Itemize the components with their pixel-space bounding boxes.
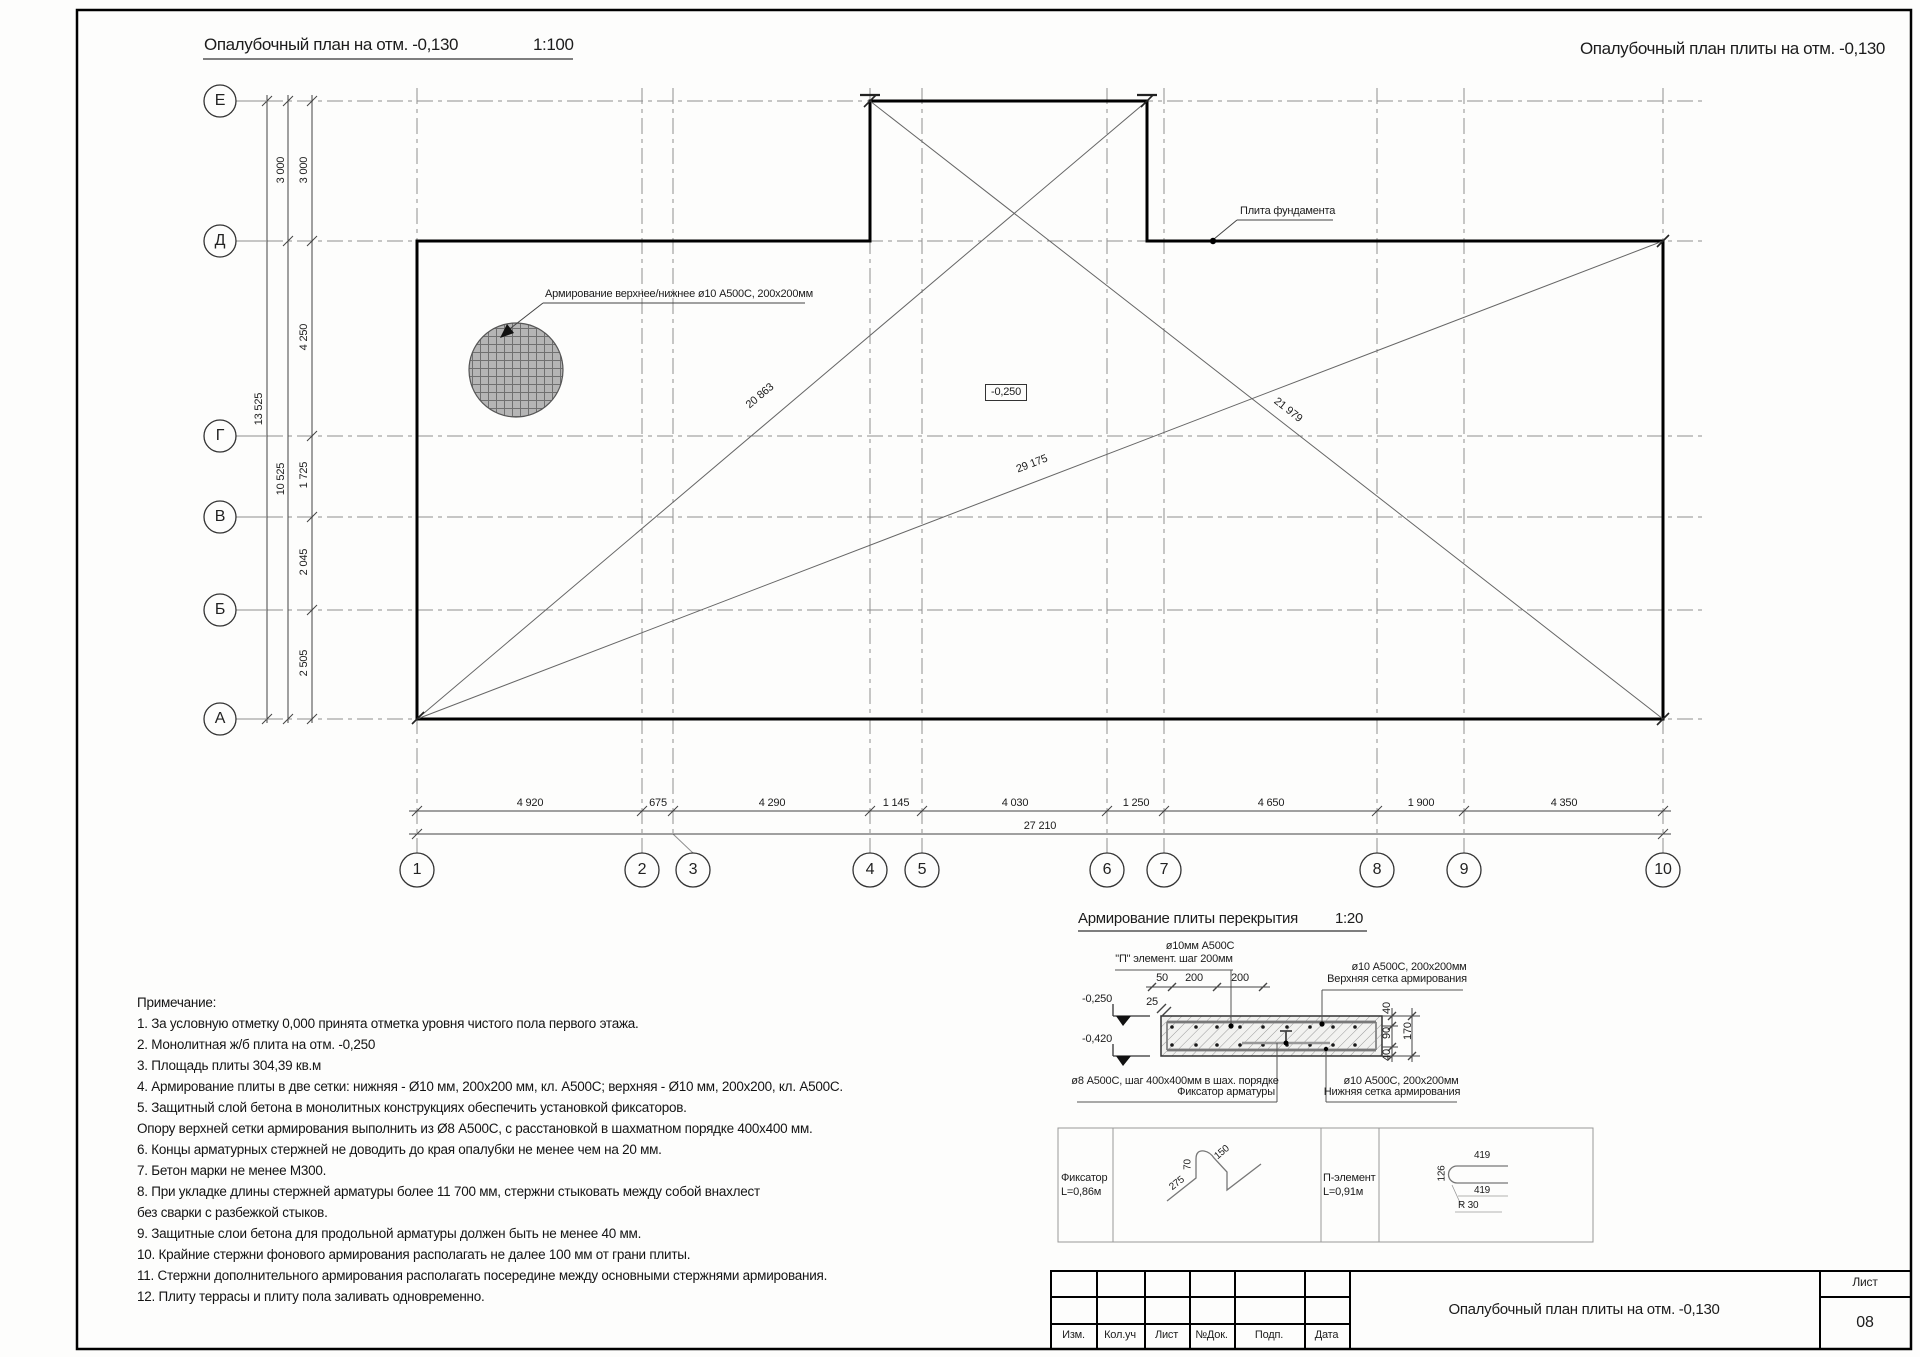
dim-bottom-4650: 4 650 <box>1249 797 1293 809</box>
dim-bottom-4290: 4 290 <box>750 797 794 809</box>
p-element-shape <box>1449 1166 1509 1183</box>
note-line: Опору верхней сетки армирования выполнит… <box>137 1121 812 1136</box>
axis-col-3: 3 <box>676 861 710 879</box>
dim-bottom-1250: 1 250 <box>1114 797 1158 809</box>
note-line: 11. Стержни дополнительного армирования … <box>137 1268 827 1283</box>
axis-row-E: Е <box>204 92 236 110</box>
p-dim-radius: R 30 <box>1458 1200 1478 1211</box>
dim-left-3000b: 3 000 <box>275 145 287 195</box>
dim-bottom-1900: 1 900 <box>1399 797 1443 809</box>
axis-col-7: 7 <box>1147 861 1181 879</box>
note-line: 12. Плиту террасы и плиту пола заливать … <box>137 1289 485 1304</box>
dim-left-2505: 2 505 <box>298 638 310 688</box>
axis-col-4: 4 <box>853 861 887 879</box>
section-upper-mesh-2: Верхняя сетка армирования <box>1317 973 1477 985</box>
axis-col-9: 9 <box>1447 861 1481 879</box>
axis-row-B: Б <box>204 601 236 619</box>
note-line: 3. Площадь плиты 304,39 кв.м <box>137 1058 321 1073</box>
tb-doc-title: Опалубочный план плиты на отм. -0,130 <box>1359 1302 1809 1319</box>
notes-header: Примечание: <box>137 995 216 1010</box>
dim-left-1725: 1 725 <box>298 450 310 500</box>
tb-col-koluch: Кол.уч <box>1097 1329 1143 1341</box>
level-mark: -0,250 <box>985 384 1027 401</box>
note-line: 6. Концы арматурных стержней не доводить… <box>137 1142 662 1157</box>
axis-col-2: 2 <box>625 861 659 879</box>
axis-col-6: 6 <box>1090 861 1124 879</box>
sheet-title-top-right: Опалубочный план плиты на отм. -0,130 <box>1500 40 1885 59</box>
section-upper-mesh-1: ø10 А500С, 200х200мм <box>1329 961 1489 973</box>
note-line: 1. За условную отметку 0,000 принята отм… <box>137 1016 639 1031</box>
section-dim-200a: 200 <box>1180 972 1208 984</box>
p-dim-126: 126 <box>1437 1160 1448 1188</box>
tb-col-list: Лист <box>1145 1329 1188 1341</box>
section-lvl-top: -0,250 <box>1068 993 1112 1005</box>
section-lower-mesh-2: Нижняя сетка армирования <box>1312 1086 1472 1098</box>
col-axis-circles <box>400 853 1680 887</box>
dim-bottom-675: 675 <box>636 797 680 809</box>
axis-col-8: 8 <box>1360 861 1394 879</box>
drawing-sheet: Опалубочный план на отм. -0,130 1:100 Оп… <box>0 0 1920 1357</box>
section-dim-200b: 200 <box>1226 972 1254 984</box>
section-top-note-1: ø10мм А500С <box>1130 940 1270 952</box>
p-dim-419-bottom: 419 <box>1465 1185 1499 1196</box>
p-element-label: П-элемент <box>1323 1172 1375 1184</box>
tb-col-ndok: №Док. <box>1190 1329 1233 1341</box>
section-title: Армирование плиты перекрытия <box>1078 911 1298 928</box>
section-dim-25: 25 <box>1142 996 1162 1008</box>
p-element-length: L=0,91м <box>1323 1186 1363 1198</box>
slab-outline <box>417 101 1663 719</box>
note-line: 4. Армирование плиты в две сетки: нижняя… <box>137 1079 843 1094</box>
section-dim-170: 170 <box>1402 1017 1414 1045</box>
dim-bottom-4350: 4 350 <box>1542 797 1586 809</box>
section-dim-40b: 40 <box>1381 1043 1393 1067</box>
section-scale: 1:20 <box>1335 911 1363 928</box>
p-dim-419-top: 419 <box>1465 1150 1499 1161</box>
axis-row-D: Д <box>204 232 236 250</box>
axis-row-V: В <box>204 508 236 526</box>
section-lvl-bot: -0,420 <box>1068 1033 1112 1045</box>
mesh-note-leader <box>500 303 805 338</box>
note-line: 10. Крайние стержни фонового армирования… <box>137 1247 690 1262</box>
axis-col-10: 10 <box>1646 861 1680 879</box>
diagonal-dimension-lines <box>412 95 1669 725</box>
mesh-note: Армирование верхнее/нижнее ø10 А500С, 20… <box>545 288 813 300</box>
plan-title: Опалубочный план на отм. -0,130 <box>204 36 458 55</box>
fixator-dim-70: 70 <box>1183 1153 1194 1177</box>
tb-col-podp: Подп. <box>1235 1329 1303 1341</box>
note-line: 8. При укладке длины стержней арматуры б… <box>137 1184 760 1199</box>
note-line: 2. Монолитная ж/б плита на отм. -0,250 <box>137 1037 375 1052</box>
dim-left-13525: 13 525 <box>253 382 265 436</box>
section-fixator-2: Фиксатор арматуры <box>1116 1086 1336 1098</box>
section-dim-50: 50 <box>1150 972 1174 984</box>
axis-row-A: А <box>204 710 236 728</box>
tb-sheet-number: 08 <box>1821 1314 1909 1332</box>
axis-row-G: Г <box>204 427 236 445</box>
tb-col-data: Дата <box>1305 1329 1348 1341</box>
note-line: без сварки с разбежкой стыков. <box>137 1205 328 1220</box>
element-boxes <box>1058 1128 1593 1242</box>
plan-scale: 1:100 <box>533 36 574 55</box>
section-dim-40a: 40 <box>1381 996 1393 1020</box>
axis-col-5: 5 <box>905 861 939 879</box>
dim-left-10525: 10 525 <box>275 452 287 506</box>
dim-left-4250: 4 250 <box>298 312 310 362</box>
dim-bottom-4030: 4 030 <box>993 797 1037 809</box>
dim-bottom-total: 27 210 <box>1013 820 1067 832</box>
dim-bottom-1145: 1 145 <box>874 797 918 809</box>
note-line: 5. Защитный слой бетона в монолитных кон… <box>137 1100 687 1115</box>
section-top-note-2: "П" элемент. шаг 200мм <box>1094 953 1254 965</box>
tb-sheet-label: Лист <box>1821 1276 1909 1289</box>
fixator-length: L=0,86м <box>1061 1186 1101 1198</box>
dim-left-2045: 2 045 <box>298 537 310 587</box>
dim-bottom-4920: 4 920 <box>508 797 552 809</box>
tb-col-izm: Изм. <box>1052 1329 1095 1341</box>
section-dim-90: 90 <box>1381 1021 1393 1045</box>
axis-grid-lines <box>237 88 1705 853</box>
mesh-symbol-circle <box>469 323 563 417</box>
fixator-label: Фиксатор <box>1061 1172 1107 1184</box>
note-line: 7. Бетон марки не менее М300. <box>137 1163 326 1178</box>
slab-note: Плита фундамента <box>1240 205 1335 217</box>
dim-left-3000a: 3 000 <box>298 145 310 195</box>
axis-col-1: 1 <box>400 861 434 879</box>
note-line: 9. Защитные слои бетона для продольной а… <box>137 1226 641 1241</box>
